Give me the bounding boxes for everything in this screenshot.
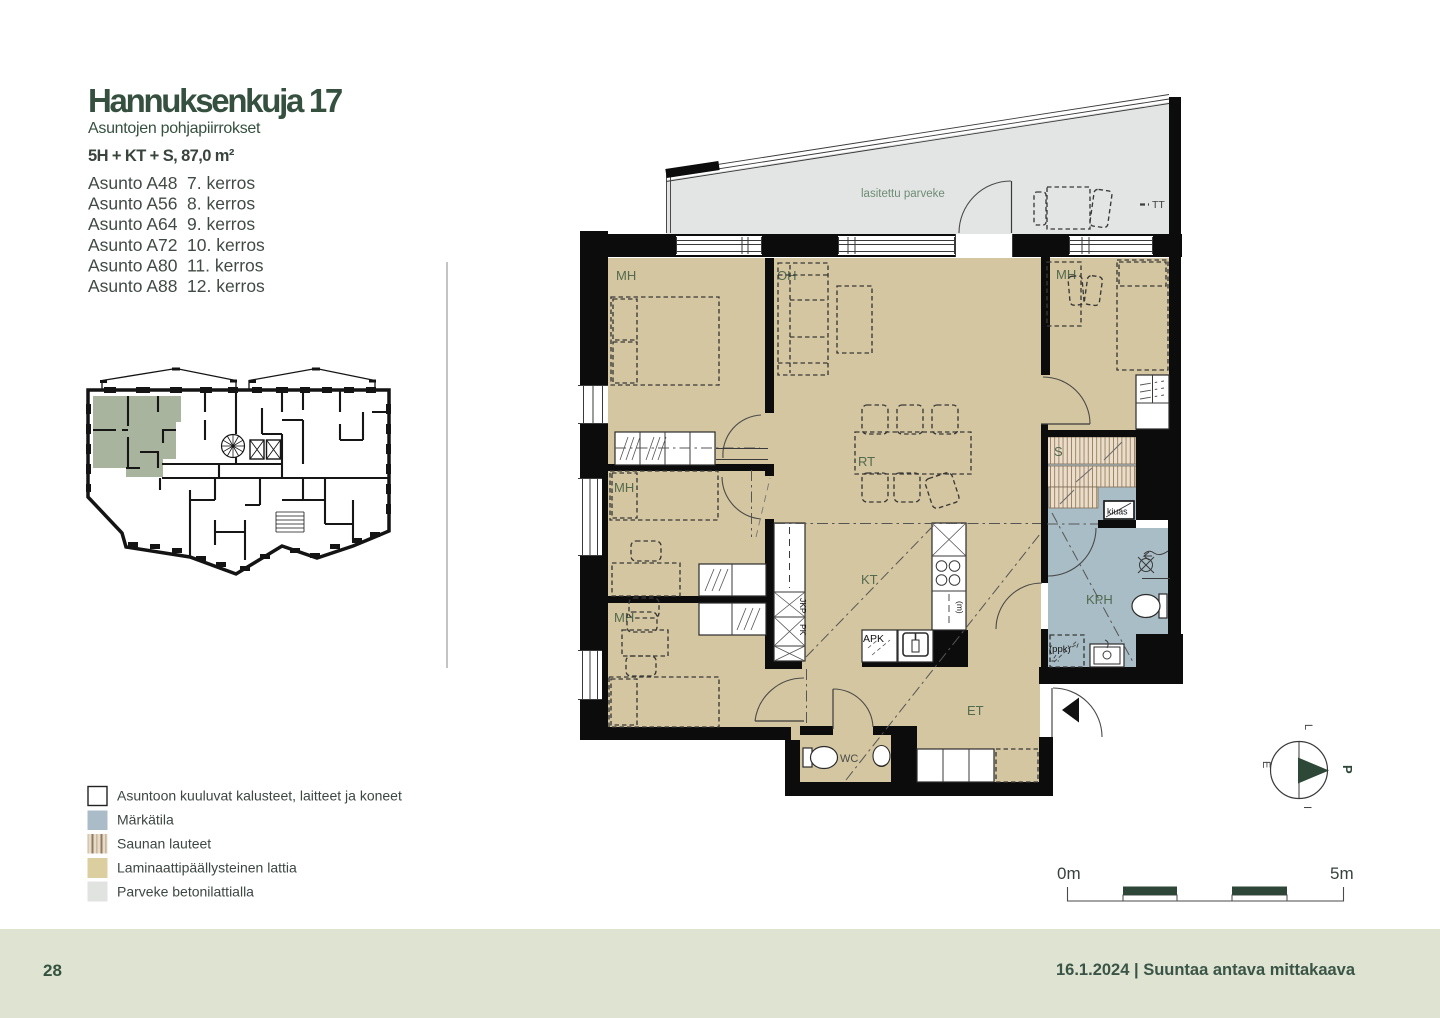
svg-text:9. kerros: 9. kerros	[187, 214, 255, 234]
svg-text:APK: APK	[863, 633, 884, 645]
svg-text:Asuntojen pohjapiirrokset: Asuntojen pohjapiirrokset	[88, 120, 261, 137]
svg-text:Asunto A64: Asunto A64	[88, 214, 178, 234]
svg-text:Saunan lauteet: Saunan lauteet	[117, 836, 211, 852]
svg-text:Asunto A56: Asunto A56	[88, 194, 178, 214]
svg-text:PK: PK	[798, 624, 808, 636]
svg-text:MH: MH	[1056, 267, 1076, 282]
svg-text:P: P	[1340, 765, 1355, 774]
svg-text:KT: KT	[861, 572, 878, 587]
svg-text:Asuntoon kuuluvat kalusteet, l: Asuntoon kuuluvat kalusteet, laitteet ja…	[117, 788, 402, 804]
svg-text:16.1.2024 | Suuntaa antava mit: 16.1.2024 | Suuntaa antava mittakaava	[1056, 961, 1356, 979]
svg-text:Asunto A88: Asunto A88	[88, 276, 178, 296]
svg-text:I: I	[1301, 806, 1313, 809]
svg-text:5H + KT + S, 87,0 m²: 5H + KT + S, 87,0 m²	[88, 147, 235, 165]
svg-text:(m): (m)	[955, 601, 965, 614]
svg-text:8. kerros: 8. kerros	[187, 194, 255, 214]
svg-text:E: E	[1260, 761, 1272, 768]
svg-text:Parveke betonilattialla: Parveke betonilattialla	[117, 884, 254, 900]
svg-text:0m: 0m	[1057, 864, 1081, 883]
svg-text:ET: ET	[967, 703, 984, 718]
svg-text:RT: RT	[858, 454, 875, 469]
svg-text:Hannuksenkuja 17: Hannuksenkuja 17	[88, 82, 342, 119]
svg-text:MH: MH	[614, 610, 634, 625]
svg-text:TT: TT	[1152, 199, 1165, 211]
svg-text:(ppk): (ppk)	[1049, 644, 1071, 655]
svg-text:Asunto A72: Asunto A72	[88, 235, 178, 255]
svg-text:WC: WC	[840, 753, 858, 765]
svg-text:S: S	[1054, 444, 1063, 459]
svg-text:Asunto A48: Asunto A48	[88, 173, 178, 193]
svg-text:kiuas: kiuas	[1107, 507, 1128, 517]
svg-text:7. kerros: 7. kerros	[187, 173, 255, 193]
svg-text:28: 28	[43, 961, 62, 980]
svg-text:MH: MH	[614, 480, 634, 495]
svg-text:KPH: KPH	[1086, 592, 1113, 607]
svg-text:10. kerros: 10. kerros	[187, 235, 265, 255]
svg-text:5m: 5m	[1330, 864, 1354, 883]
svg-text:lasitettu parveke: lasitettu parveke	[861, 188, 945, 200]
svg-text:JKP: JKP	[798, 598, 808, 614]
svg-text:12. kerros: 12. kerros	[187, 276, 265, 296]
svg-text:11. kerros: 11. kerros	[187, 255, 264, 275]
svg-text:MH: MH	[616, 268, 636, 283]
svg-text:L: L	[1302, 724, 1314, 730]
svg-text:Asunto A80: Asunto A80	[88, 255, 178, 275]
svg-text:Laminaattipäällysteinen lattia: Laminaattipäällysteinen lattia	[117, 860, 297, 876]
svg-text:Märkätila: Märkätila	[117, 812, 174, 828]
